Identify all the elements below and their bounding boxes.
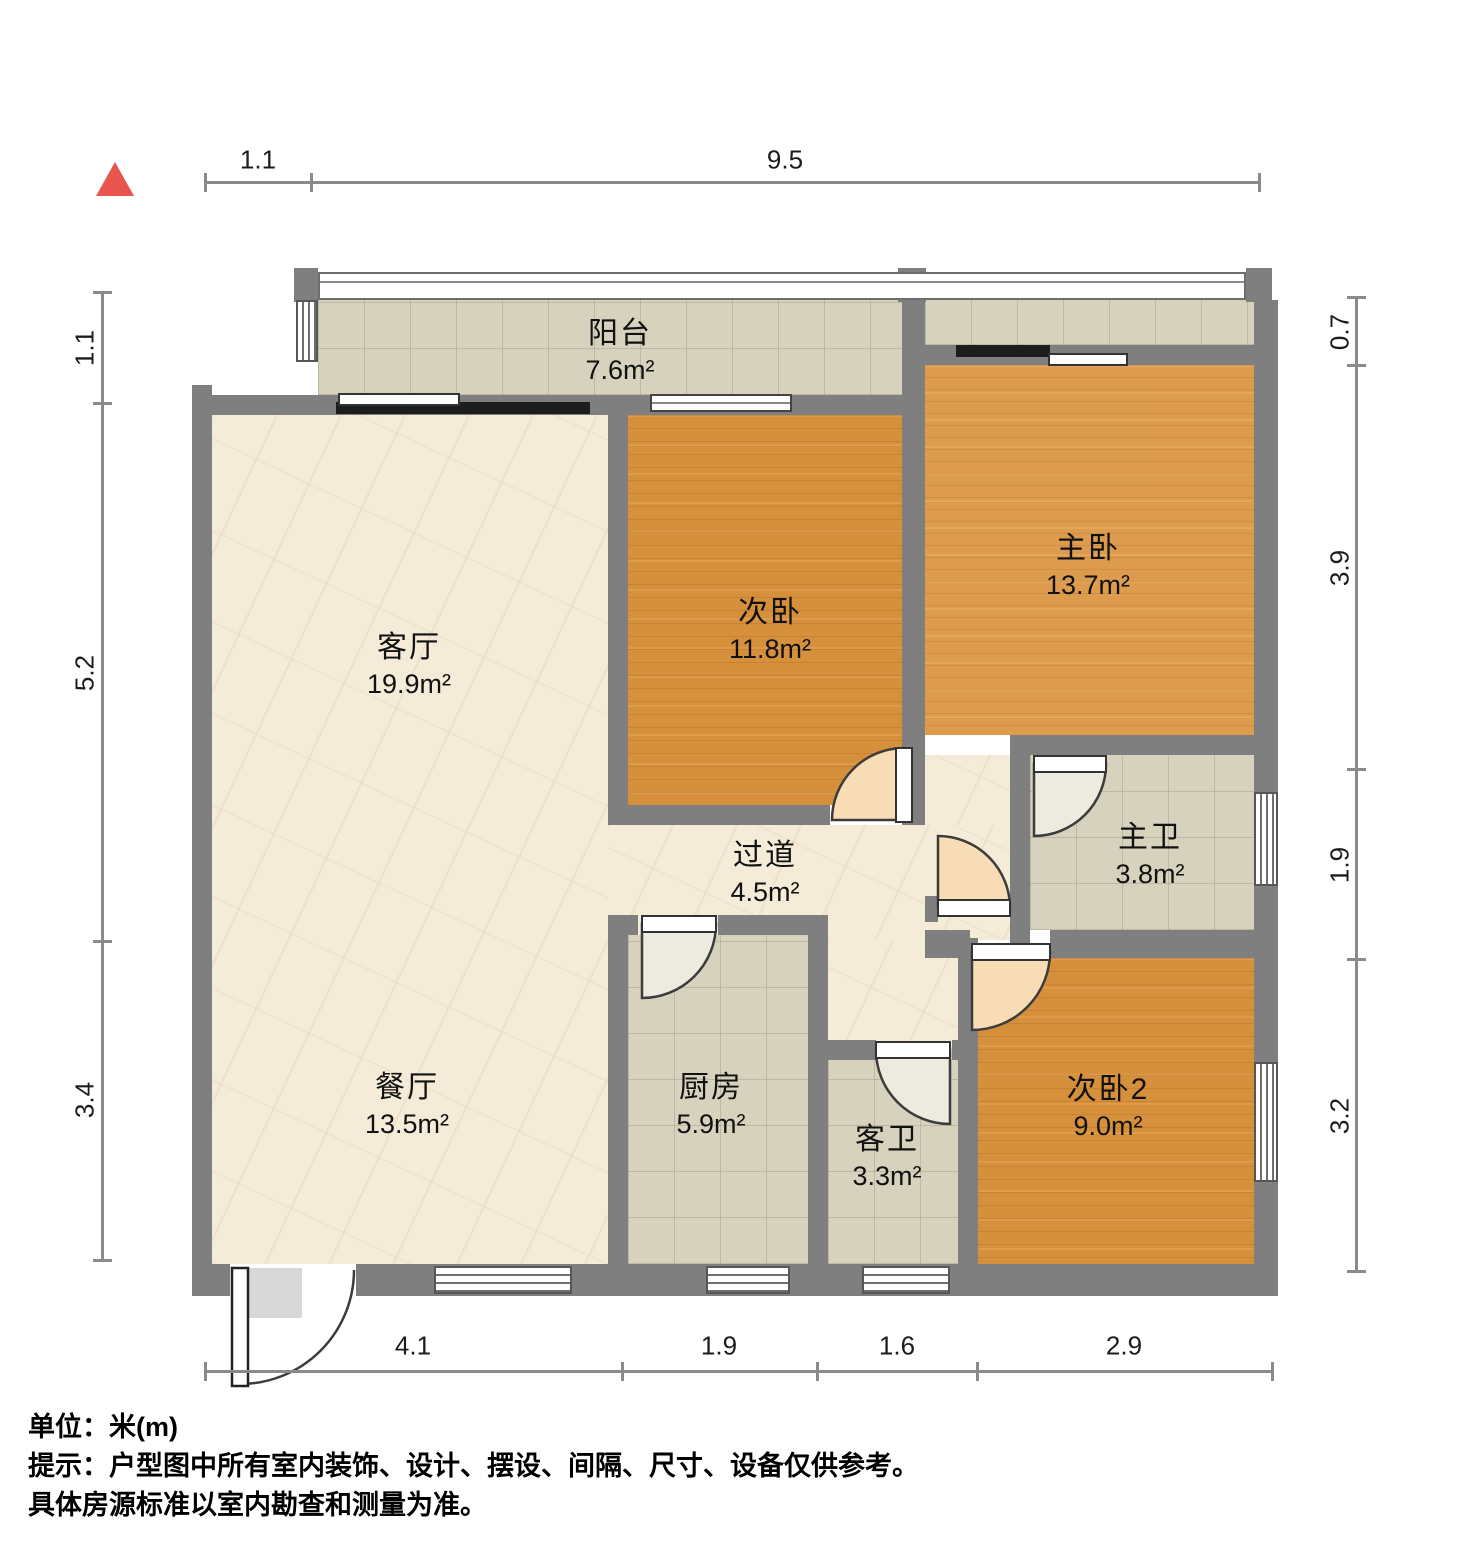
dim-tick bbox=[93, 1259, 112, 1262]
room-name: 阳台 bbox=[585, 316, 654, 352]
wall-left bbox=[192, 385, 212, 1296]
window bbox=[434, 1266, 572, 1294]
dim-line-bottom bbox=[205, 1370, 1274, 1373]
wall-pillar bbox=[1246, 268, 1272, 302]
dim-tick bbox=[976, 1362, 979, 1381]
room-area: 3.8m² bbox=[1115, 856, 1184, 892]
label-kitchen: 厨房 5.9m² bbox=[676, 1070, 745, 1142]
label-corridor: 过道 4.5m² bbox=[730, 838, 799, 910]
room-name: 次卧2 bbox=[1067, 1072, 1150, 1108]
sliding-door-leaf bbox=[1048, 353, 1128, 366]
dim-label: 1.1 bbox=[70, 330, 101, 366]
dim-tick bbox=[1258, 173, 1261, 192]
dim-tick bbox=[1347, 1270, 1366, 1273]
wall-bed3-top bbox=[1050, 930, 1278, 958]
dim-label: 2.9 bbox=[1106, 1331, 1142, 1362]
room-area: 19.9m² bbox=[367, 666, 451, 702]
room-area: 7.6m² bbox=[585, 352, 654, 388]
window bbox=[1254, 1062, 1278, 1182]
dim-tick bbox=[93, 291, 112, 294]
dim-tick bbox=[1347, 296, 1366, 299]
wall-kitchen-top bbox=[718, 915, 828, 935]
room-name: 客厅 bbox=[367, 630, 451, 666]
room-area: 13.7m² bbox=[1046, 567, 1130, 603]
room-name: 厨房 bbox=[676, 1070, 745, 1106]
wall-bed2-master bbox=[902, 300, 925, 825]
room-name: 次卧 bbox=[729, 595, 811, 631]
floorplan-canvas: 阳台 7.6m² 客厅 19.9m² 次卧 11.8m² 主卧 13.7m² 主… bbox=[0, 0, 1464, 1557]
wall-master-bottom bbox=[1010, 735, 1278, 755]
wall-bed2-bottom bbox=[912, 805, 925, 825]
room-area: 11.8m² bbox=[729, 631, 811, 667]
wall-bed2-bottom bbox=[608, 805, 830, 825]
wall-gbath-top bbox=[808, 1040, 876, 1060]
dim-tick bbox=[204, 1362, 207, 1381]
disclaimer-note: 具体房源标准以室内勘查和测量为准。 bbox=[28, 1486, 919, 1525]
dim-label: 3.2 bbox=[1325, 1098, 1356, 1134]
dim-line-left bbox=[101, 292, 104, 1262]
label-master: 主卧 13.7m² bbox=[1046, 531, 1130, 603]
disclaimer-note: 提示：户型图中所有室内装饰、设计、摆设、间隔、尺寸、设备仅供参考。 bbox=[28, 1447, 919, 1486]
wall-mbath-left bbox=[1010, 755, 1030, 958]
dim-label: 3.9 bbox=[1325, 550, 1356, 586]
wall-kitchen-left bbox=[608, 935, 628, 1264]
window bbox=[296, 300, 318, 362]
wall-bed2-left bbox=[608, 395, 628, 825]
north-triangle-icon bbox=[96, 162, 134, 196]
label-guest-bath: 客卫 3.3m² bbox=[852, 1122, 921, 1194]
room-area: 4.5m² bbox=[730, 874, 799, 910]
wall-bottom bbox=[192, 1264, 232, 1296]
wall-pillar bbox=[294, 268, 318, 302]
room-area: 13.5m² bbox=[365, 1106, 449, 1142]
window bbox=[706, 1266, 790, 1294]
dim-label: 1.6 bbox=[879, 1331, 915, 1362]
window bbox=[862, 1266, 950, 1294]
unit-note: 单位：米(m) bbox=[28, 1408, 919, 1447]
dim-label: 1.9 bbox=[1325, 847, 1356, 883]
label-balcony: 阳台 7.6m² bbox=[585, 316, 654, 388]
dim-line-top bbox=[205, 181, 1261, 184]
dim-tick bbox=[1347, 364, 1366, 367]
sliding-door-track bbox=[956, 345, 1050, 357]
wall-jamb bbox=[925, 896, 938, 922]
dim-tick bbox=[310, 173, 313, 192]
footer-notes: 单位：米(m) 提示：户型图中所有室内装饰、设计、摆设、间隔、尺寸、设备仅供参考… bbox=[28, 1408, 919, 1525]
dim-tick bbox=[621, 1362, 624, 1381]
room-name: 主卫 bbox=[1115, 820, 1184, 856]
balcony-window-panel bbox=[650, 394, 792, 412]
wall-gbath-right bbox=[958, 938, 978, 1264]
dim-label: 4.1 bbox=[395, 1331, 431, 1362]
room-area: 3.3m² bbox=[852, 1158, 921, 1194]
dim-tick bbox=[1347, 958, 1366, 961]
sliding-door-leaf bbox=[338, 393, 460, 406]
dim-tick bbox=[93, 402, 112, 405]
dim-tick bbox=[816, 1362, 819, 1381]
label-living: 客厅 19.9m² bbox=[367, 630, 451, 702]
room-area: 5.9m² bbox=[676, 1106, 745, 1142]
room-name: 餐厅 bbox=[365, 1070, 449, 1106]
room-name: 过道 bbox=[730, 838, 799, 874]
window bbox=[1254, 792, 1278, 886]
dim-label: 0.7 bbox=[1325, 314, 1356, 350]
balcony-railing-window bbox=[318, 272, 1246, 300]
dim-label: 5.2 bbox=[70, 655, 101, 691]
dim-tick bbox=[93, 940, 112, 943]
dim-label: 1.9 bbox=[701, 1331, 737, 1362]
dim-label: 9.5 bbox=[767, 145, 803, 176]
dim-tick bbox=[1347, 768, 1366, 771]
dim-tick bbox=[204, 173, 207, 192]
room-name: 客卫 bbox=[852, 1122, 921, 1158]
label-master-bath: 主卫 3.8m² bbox=[1115, 820, 1184, 892]
label-bedroom3: 次卧2 9.0m² bbox=[1067, 1072, 1150, 1144]
room-balcony-right bbox=[925, 300, 1254, 345]
wall-kitchen-right bbox=[808, 935, 828, 1264]
dim-label: 3.4 bbox=[70, 1082, 101, 1118]
label-dining: 餐厅 13.5m² bbox=[365, 1070, 449, 1142]
label-bedroom2: 次卧 11.8m² bbox=[729, 595, 811, 667]
room-name: 主卧 bbox=[1046, 531, 1130, 567]
entry-door-shade bbox=[232, 1268, 302, 1318]
room-area: 9.0m² bbox=[1067, 1108, 1150, 1144]
wall-kitchen-top bbox=[608, 915, 638, 935]
dim-tick bbox=[1271, 1362, 1274, 1381]
dim-label: 1.1 bbox=[240, 145, 276, 176]
